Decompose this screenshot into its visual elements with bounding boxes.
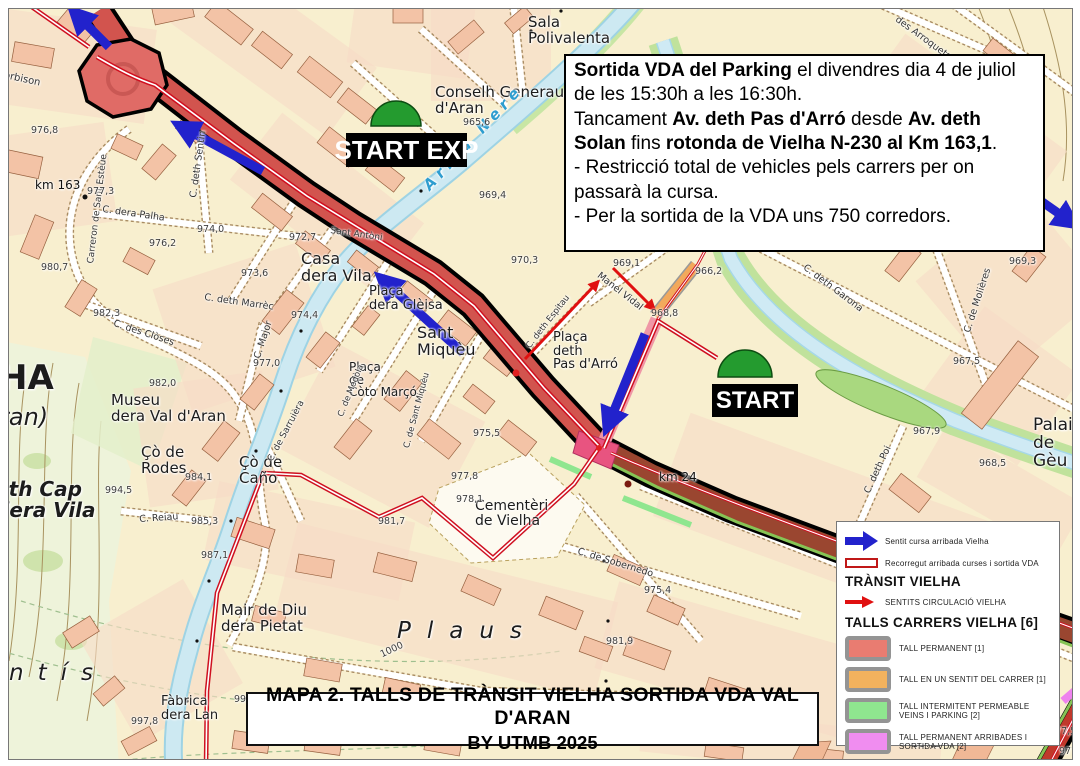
legend-item: TALL EN UN SENTIT DEL CARRER [1] <box>845 667 1053 692</box>
start-label: START <box>712 384 798 417</box>
legend-item: TALL PERMANENT ARRIBADES I SORTIDA VDA [… <box>845 729 1053 754</box>
legend-item-label: TALL INTERMITENT PERMEABLE VEINS I PARKI… <box>899 702 1053 720</box>
red-arrow-icon <box>845 595 875 609</box>
legend-talls-heading: TALLS CARRERS VIELHA [6] <box>845 615 1053 630</box>
start-exp-label: START EXP <box>346 133 467 167</box>
legend-item: TALL INTERMITENT PERMEABLE VEINS I PARKI… <box>845 698 1053 723</box>
color-swatch <box>845 636 891 661</box>
legend-item-label: TALL EN UN SENTIT DEL CARRER [1] <box>899 675 1046 684</box>
map-canvas: Sala PolivalentaConselh Generau d'AranAr… <box>8 8 1073 760</box>
route-bar-icon <box>845 558 878 568</box>
blue-arrow-icon <box>845 530 879 552</box>
info-box-text: Sortida VDA del Parking el divendres dia… <box>574 59 1035 229</box>
map-page: Sala PolivalentaConselh Generau d'AranAr… <box>0 0 1080 766</box>
legend-item: SENTITS CIRCULACIÓ VIELHA <box>845 595 1053 609</box>
color-swatch <box>845 667 891 692</box>
legend-item-label: Recorregut arribada curses i sortida VDA <box>885 559 1039 568</box>
roundabout <box>79 39 167 117</box>
info-box: Sortida VDA del Parking el divendres dia… <box>564 54 1045 252</box>
legend-transit-items: SENTITS CIRCULACIÓ VIELHA <box>845 595 1053 609</box>
legend-item: Sentit cursa arribada Vielha <box>845 530 1053 552</box>
legend-item-label: TALL PERMANENT [1] <box>899 644 984 653</box>
legend-box: Sentit cursa arribada VielhaRecorregut a… <box>836 521 1060 746</box>
legend-item: TALL PERMANENT [1] <box>845 636 1053 661</box>
map-title-box: MAPA 2. TALLS DE TRÀNSIT VIELHA SORTIDA … <box>246 692 819 746</box>
legend-talls-items: TALL PERMANENT [1]TALL EN UN SENTIT DEL … <box>845 636 1053 754</box>
legend-item-label: TALL PERMANENT ARRIBADES I SORTIDA VDA [… <box>899 733 1053 751</box>
map-title-line2: BY UTMB 2025 <box>467 732 597 754</box>
legend-item: Recorregut arribada curses i sortida VDA <box>845 558 1053 568</box>
color-swatch <box>845 729 891 754</box>
map-title-line1: MAPA 2. TALLS DE TRÀNSIT VIELHA SORTIDA … <box>248 684 817 730</box>
legend-item-label: SENTITS CIRCULACIÓ VIELHA <box>885 598 1006 607</box>
legend-top-items: Sentit cursa arribada VielhaRecorregut a… <box>845 530 1053 568</box>
legend-item-label: Sentit cursa arribada Vielha <box>885 537 989 546</box>
color-swatch <box>845 698 891 723</box>
legend-transit-heading: TRÀNSIT VIELHA <box>845 574 1053 589</box>
